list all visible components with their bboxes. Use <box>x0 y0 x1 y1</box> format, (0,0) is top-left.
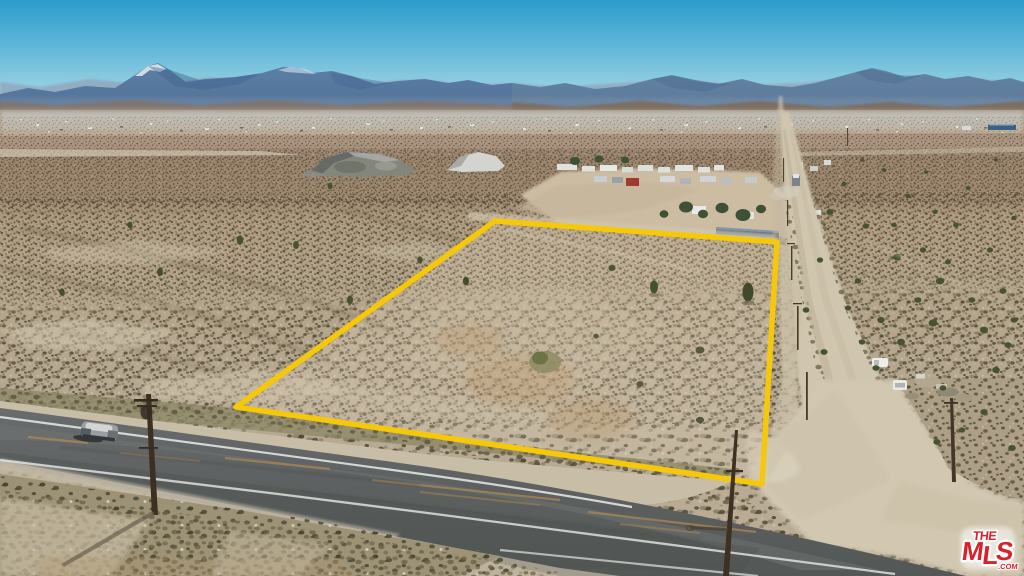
svg-text:.COM: .COM <box>998 562 1019 571</box>
